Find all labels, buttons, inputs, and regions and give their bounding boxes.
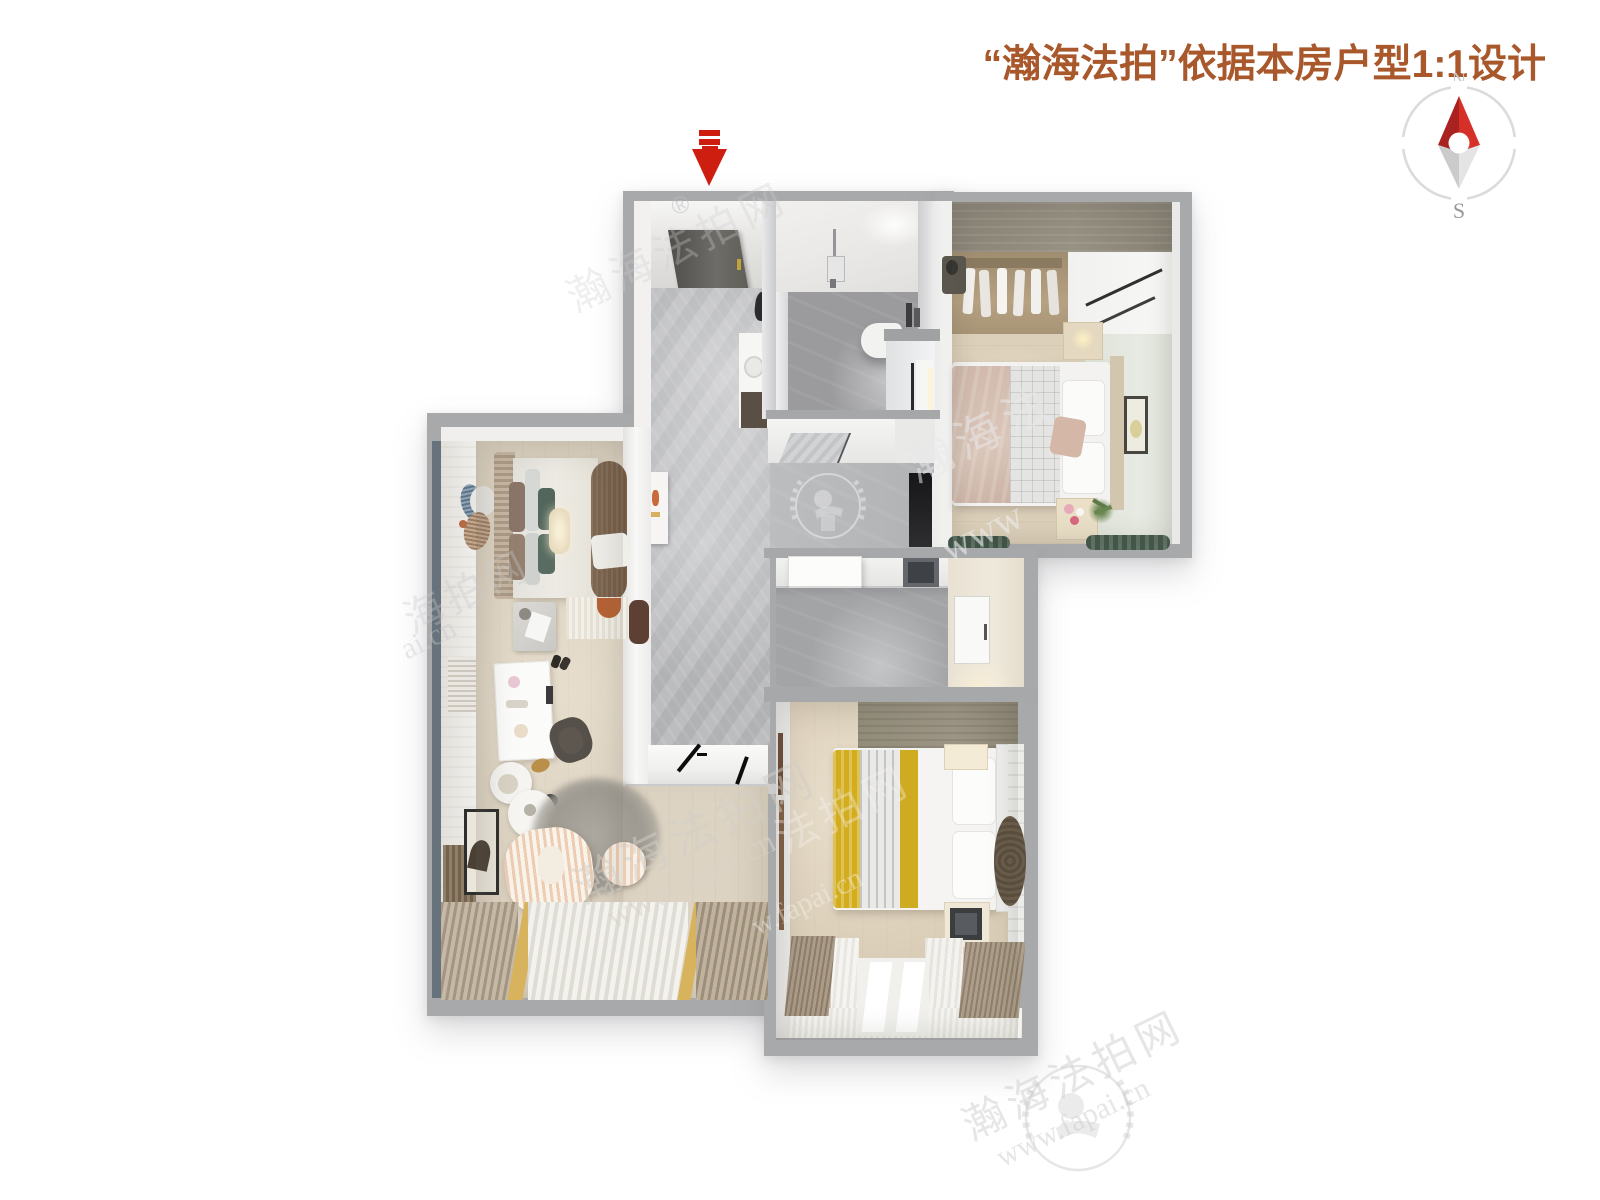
svg-text:S: S bbox=[1453, 198, 1465, 223]
